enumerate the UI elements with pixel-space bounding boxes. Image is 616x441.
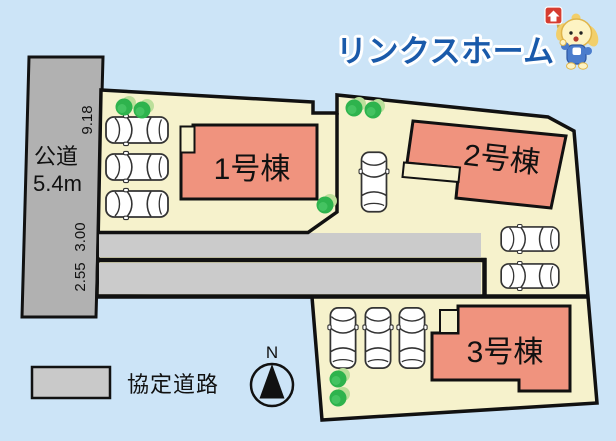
logo-text: リンクスホーム — [336, 34, 555, 69]
building-1-porch — [181, 127, 195, 153]
legend-label: 協定道路 — [127, 372, 219, 397]
car-icon — [106, 114, 168, 145]
car-icon — [359, 152, 389, 212]
agreement-road-upper — [99, 233, 481, 257]
car-icon — [397, 308, 427, 368]
agreement-road-lower — [99, 263, 481, 294]
legend-swatch — [32, 367, 110, 398]
dimension-upper-road: 3.00 — [72, 222, 89, 251]
site-plan-svg: 1号棟 2号棟 3号棟 公道 5.4m 9.18 3.00 2.55 協定道路 … — [0, 0, 616, 441]
dimension-lower-road: 2.55 — [72, 262, 89, 291]
car-icon — [363, 308, 393, 368]
building-3-porch — [440, 310, 458, 333]
building-3-label: 3号棟 — [467, 336, 544, 369]
car-icon — [328, 308, 358, 368]
building-1-label: 1号棟 — [214, 153, 291, 186]
car-icon — [106, 151, 168, 182]
car-icon — [501, 261, 559, 290]
public-road-name: 公道 — [34, 144, 78, 169]
dimension-road-side: 9.18 — [79, 105, 96, 134]
site-plan-page: 1号棟 2号棟 3号棟 公道 5.4m 9.18 3.00 2.55 協定道路 … — [0, 0, 616, 441]
car-icon — [106, 188, 168, 219]
compass-label: N — [266, 343, 278, 362]
public-road-width: 5.4m — [33, 171, 82, 196]
car-icon — [501, 224, 559, 253]
